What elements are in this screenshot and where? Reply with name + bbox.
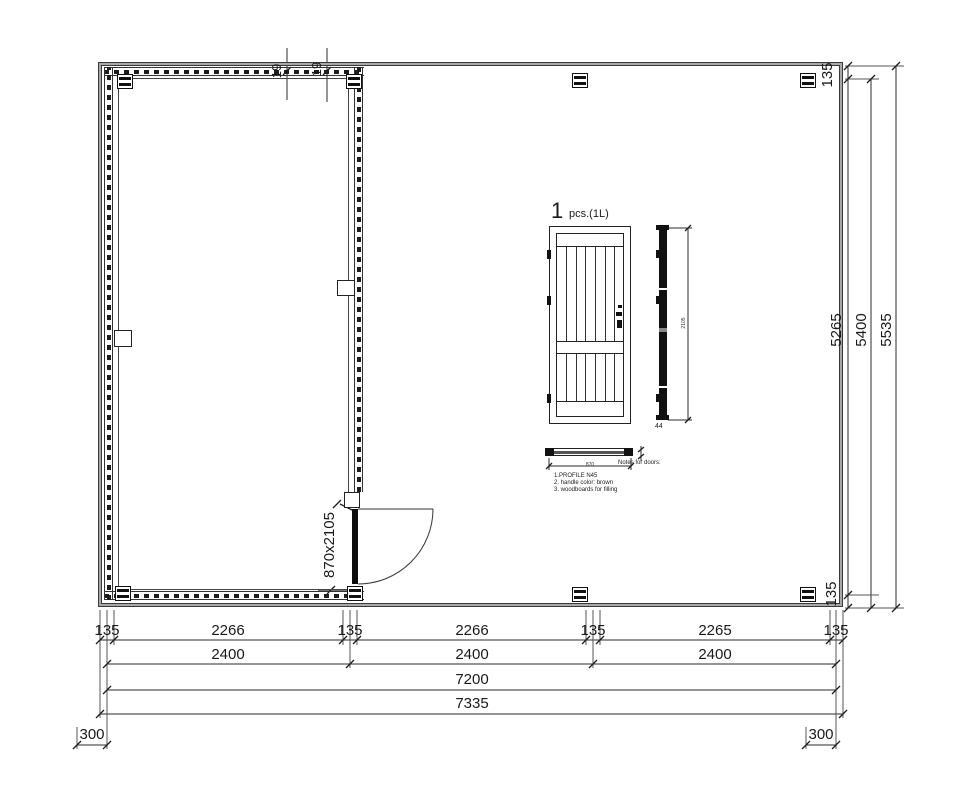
hinge-mark (547, 296, 551, 305)
dim-label: 5400 (854, 270, 870, 390)
door-width-dim: 870 (560, 462, 620, 468)
floor-plan-drawing: 870x2105 19 19 135 2266 135 2266 135 226… (0, 0, 959, 794)
dim-label-overhang: 300 (808, 727, 833, 743)
door-frame-block (344, 492, 360, 508)
wall-connector (114, 330, 132, 347)
door-note-line: 3. woodboards for filling (554, 487, 617, 495)
handle-mark (617, 320, 622, 328)
dim-label: 2400 (211, 647, 244, 663)
building-outline (99, 63, 842, 606)
dim-label: 2266 (211, 623, 244, 639)
door-bottom-rail (556, 401, 624, 417)
board-thickness-label: 19 (269, 11, 285, 131)
door-height-dim: 2105 (681, 293, 687, 353)
door-top-view (545, 448, 633, 456)
door-middle-rail (556, 341, 624, 354)
post-symbol (572, 587, 588, 602)
door-plank-line (566, 247, 567, 402)
door-leaf (352, 509, 358, 584)
hinge-mark (547, 394, 551, 403)
dim-label: 2400 (698, 647, 731, 663)
door-notes-title: Notes for doors: (618, 460, 661, 468)
board-thickness-label: 19 (309, 9, 325, 129)
post-symbol (572, 73, 588, 88)
handle-mark (616, 312, 622, 316)
dim-label: 2266 (455, 623, 488, 639)
hinge-mark (656, 250, 659, 258)
dim-label: 135 (824, 534, 840, 654)
post-symbol (117, 74, 133, 89)
post-symbol (346, 74, 362, 89)
post-symbol (115, 586, 131, 601)
door-side-view (659, 228, 667, 420)
cabin-wall-top (104, 67, 364, 76)
door-plank-line (605, 247, 606, 402)
dim-label: 135 (94, 623, 119, 639)
door-top-rail (556, 233, 624, 247)
cabin-wall-right (354, 67, 363, 492)
wall-connector (337, 280, 355, 296)
dim-label: 135 (337, 623, 362, 639)
door-plank-line (576, 247, 577, 402)
hinge-mark (656, 296, 659, 304)
door-quantity: 1 (551, 198, 563, 224)
door-quantity-note: pcs.(1L) (569, 208, 609, 220)
inner-face-bottom (118, 589, 349, 590)
door-top-view-endcap (624, 448, 633, 456)
door-size-label: 870x2105 (322, 485, 338, 605)
dim-label: 135 (820, 15, 836, 135)
door-plank-line (614, 247, 615, 402)
handle-mark (618, 305, 622, 308)
dim-label-total: 7200 (455, 672, 488, 688)
dim-label-overhang: 300 (79, 727, 104, 743)
cabin-wall-left (104, 67, 113, 600)
dim-label: 2400 (455, 647, 488, 663)
door-plank-line (585, 247, 586, 402)
door-plank-line (595, 247, 596, 402)
dim-label: 5265 (829, 270, 845, 390)
hinge-mark (547, 250, 551, 259)
door-thickness-dim: 44 (655, 423, 663, 431)
dim-label-total: 7335 (455, 696, 488, 712)
post-symbol (800, 73, 816, 88)
hinge-mark (656, 394, 659, 402)
dim-label: 135 (580, 623, 605, 639)
door-top-view-endcap (545, 448, 554, 456)
post-symbol (347, 586, 363, 601)
dim-label: 2265 (698, 623, 731, 639)
post-symbol (800, 587, 816, 602)
dim-label: 5535 (879, 270, 895, 390)
